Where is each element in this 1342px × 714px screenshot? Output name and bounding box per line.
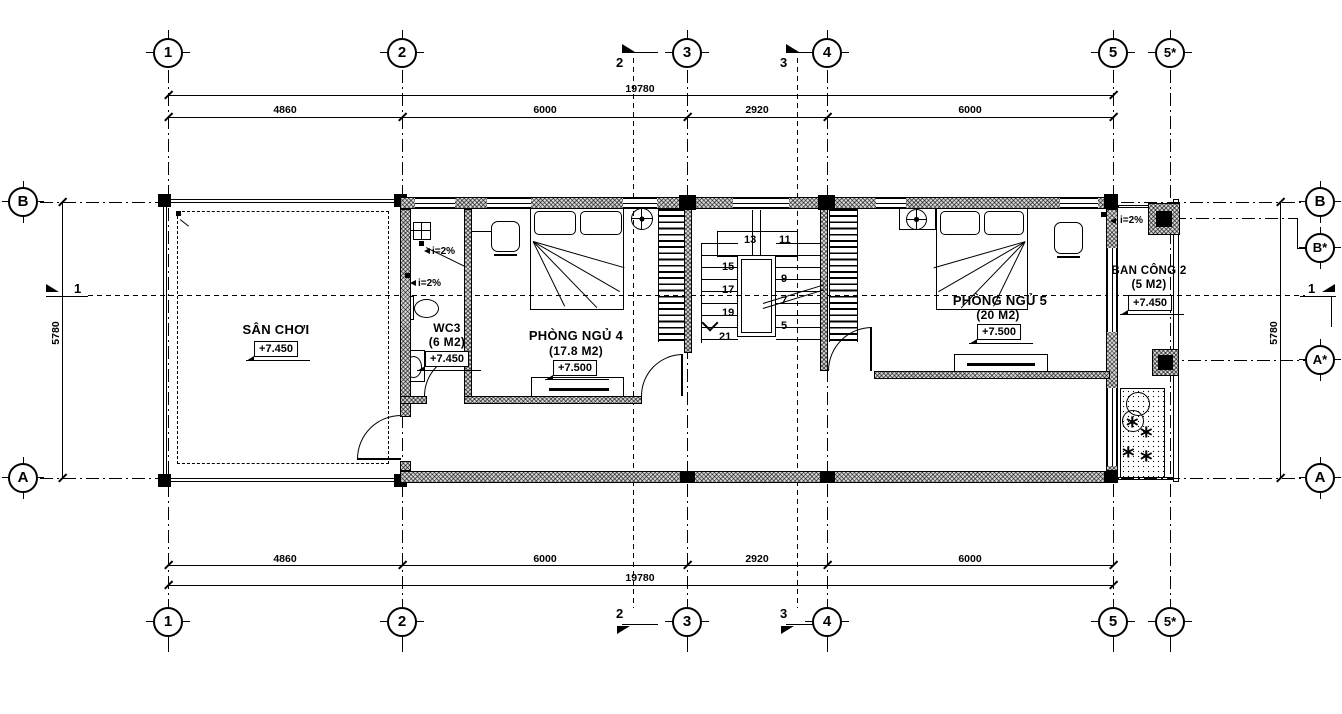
floor-plan-canvas: 19780 4860 6000 2920 6000 4860 6000 2920… [0, 0, 1342, 714]
grid-bubble-As-right: A* [1305, 345, 1335, 375]
grid-bubble-4-bottom: 4 [812, 607, 842, 637]
level-marker-bed5: +7.500 [977, 324, 1021, 340]
column [679, 195, 696, 210]
room-label-wc3: WC3 [433, 321, 461, 335]
room-area-bed4: (17.8 M2) [549, 344, 603, 358]
drain-point [176, 211, 181, 216]
room-label-balcony2: BAN CÔNG 2 [1111, 265, 1186, 277]
grid-bubble-5-bottom: 5 [1098, 607, 1128, 637]
section-number-2-top: 2 [616, 55, 623, 70]
grid-bubble-A-left: A [8, 463, 38, 493]
desk-line [472, 231, 491, 232]
stair-step: 15 [722, 261, 734, 273]
column [680, 471, 695, 483]
pillow [534, 211, 576, 235]
chair [491, 221, 520, 252]
grid-bubble-5s-top: 5* [1155, 38, 1185, 68]
balcony-parapet-east [1173, 199, 1179, 482]
grid-bubble-1-top: 1 [153, 38, 183, 68]
column [820, 471, 835, 483]
stair-step: 13 [744, 234, 756, 246]
dim-line-right [1280, 202, 1281, 478]
column [818, 195, 835, 210]
grid-bubble-B-right: B [1305, 187, 1335, 217]
window [623, 198, 657, 208]
slope-point [405, 273, 410, 278]
section-flag-3-bottom [781, 626, 794, 634]
window [415, 198, 455, 208]
section-number-1-right: 1 [1308, 281, 1315, 296]
grid-bubble-5-top: 5 [1098, 38, 1128, 68]
wall-bottom [400, 471, 1118, 483]
dim-line-left [62, 202, 63, 478]
room-label-bed4: PHÒNG NGỦ 4 [529, 328, 623, 343]
stair-step: 19 [722, 307, 734, 319]
level-marker-bed4: +7.500 [553, 360, 597, 376]
stair-step: 21 [719, 331, 731, 343]
column [1104, 471, 1118, 483]
room-area-wc3: (6 M2) [429, 335, 465, 349]
stair-step: 11 [779, 234, 791, 246]
dim-seg-bot-2: 6000 [533, 553, 556, 565]
grid-line-Bs-jog [1297, 218, 1298, 249]
wall-west [400, 209, 411, 417]
section-flag-line [46, 296, 88, 297]
column [158, 194, 171, 207]
level-marker-balcony2: +7.450 [1128, 295, 1172, 311]
dim-seg-top-3: 2920 [745, 104, 768, 116]
window [876, 198, 906, 208]
section-line-3 [797, 58, 798, 608]
section-flag-1-right [1322, 284, 1335, 292]
stair-flight-rails [658, 209, 685, 342]
level-marker-san-choi: +7.450 [254, 341, 298, 357]
dim-seg-top-4: 6000 [958, 104, 981, 116]
grid-bubble-B-left: B [8, 187, 38, 217]
stair-step: 7 [781, 295, 787, 307]
dim-line-seg-top [168, 117, 1113, 118]
canopy-overhang-dashed [177, 211, 389, 464]
wall-south-wc [400, 396, 427, 404]
dim-total-top: 19780 [625, 83, 654, 95]
room-label-bed5: PHÒNG NGỦ 5 [953, 293, 1047, 308]
slope-point [419, 241, 424, 246]
dim-line-total-top [168, 95, 1113, 96]
room-area-balcony2: (5 M2) [1131, 279, 1166, 291]
grid-bubble-1-bottom: 1 [153, 607, 183, 637]
ceiling-fan-icon [906, 209, 927, 230]
room-label-san-choi: SÂN CHƠI [243, 322, 310, 337]
section-flag-2-bottom [617, 626, 630, 634]
window [1060, 198, 1098, 208]
room-area-bed5: (20 M2) [976, 308, 1019, 322]
section-number-1-left: 1 [74, 281, 81, 296]
balcony-window-opening [1107, 388, 1117, 466]
stair-step: 9 [781, 273, 787, 285]
section-flag-2-top [622, 44, 635, 52]
chair-base [1057, 256, 1080, 258]
grid-bubble-5s-bottom: 5* [1155, 607, 1185, 637]
pillow [580, 211, 622, 235]
grid-bubble-3-bottom: 3 [672, 607, 702, 637]
dim-total-bottom: 19780 [625, 572, 654, 584]
section-flag-3-top [786, 44, 799, 52]
grid-line-5s [1170, 70, 1171, 605]
grid-bubble-2-bottom: 2 [387, 607, 417, 637]
ceiling-fan-icon [631, 208, 653, 230]
wall-south-bed5 [874, 371, 1110, 379]
column [1104, 194, 1118, 209]
slope-arrow-icon [410, 280, 416, 286]
section-flag-stem [1331, 297, 1332, 327]
section-number-3-bottom: 3 [780, 606, 787, 621]
grid-bubble-3-top: 3 [672, 38, 702, 68]
dim-side-right: 5780 [1268, 313, 1280, 353]
grid-bubble-Bs-right: B* [1305, 233, 1335, 263]
dim-seg-bot-4: 6000 [958, 553, 981, 565]
dim-side-left: 5780 [50, 313, 62, 353]
grid-bubble-A-right: A [1305, 463, 1335, 493]
chair-base [494, 254, 517, 256]
window [487, 198, 531, 208]
door-arc-bed4 [641, 354, 683, 396]
stair-step: 5 [781, 320, 787, 332]
plant-icon: * [1140, 448, 1153, 472]
slope-label-wc-2: i=2% [418, 278, 441, 289]
grid-bubble-2-top: 2 [387, 38, 417, 68]
section-line-2 [633, 58, 634, 608]
stair-flight-rails [829, 209, 858, 342]
dim-line-seg-bottom [168, 565, 1113, 566]
terrace-parapet-left [163, 199, 167, 482]
grid-line-1 [168, 70, 169, 605]
window [733, 198, 789, 208]
plant-icon: * [1140, 424, 1153, 448]
dim-seg-bot-3: 2920 [745, 553, 768, 565]
level-marker-wc3: +7.450 [425, 351, 469, 367]
section-number-2-bottom: 2 [616, 606, 623, 621]
slope-point [1101, 212, 1106, 217]
wall-west [400, 461, 411, 471]
grid-line-As [1165, 360, 1305, 361]
dim-line-total-bottom [168, 585, 1113, 586]
column [1156, 211, 1172, 227]
wardrobe-handle [549, 388, 609, 391]
column [1158, 355, 1173, 370]
balcony-door-opening [1107, 248, 1117, 332]
shower-drain-icon [413, 222, 431, 240]
grid-bubble-4-top: 4 [812, 38, 842, 68]
section-number-3-top: 3 [780, 55, 787, 70]
slope-arrow-icon [1110, 218, 1116, 224]
slope-label-wc-1: i=2% [432, 246, 455, 257]
plant-icon: * [1122, 444, 1135, 468]
tv [967, 363, 1035, 366]
wall-south-bed4 [464, 396, 642, 404]
wall-stair-west [684, 209, 692, 353]
section-flag-1-left [46, 284, 59, 292]
pillow [984, 211, 1024, 235]
slope-label-balcony: i=2% [1120, 215, 1143, 226]
dim-seg-top-1: 4860 [273, 104, 296, 116]
plant-icon: * [1126, 414, 1139, 438]
dim-seg-bot-1: 4860 [273, 553, 296, 565]
stair-step: 17 [722, 284, 734, 296]
section-line-1 [88, 295, 1305, 296]
chair [1054, 222, 1083, 254]
section-flag-line [622, 52, 658, 53]
pillow [940, 211, 980, 235]
column [158, 474, 171, 487]
dim-seg-top-2: 6000 [533, 104, 556, 116]
slope-arrow-icon [424, 248, 430, 254]
toilet-bowl [414, 299, 439, 318]
